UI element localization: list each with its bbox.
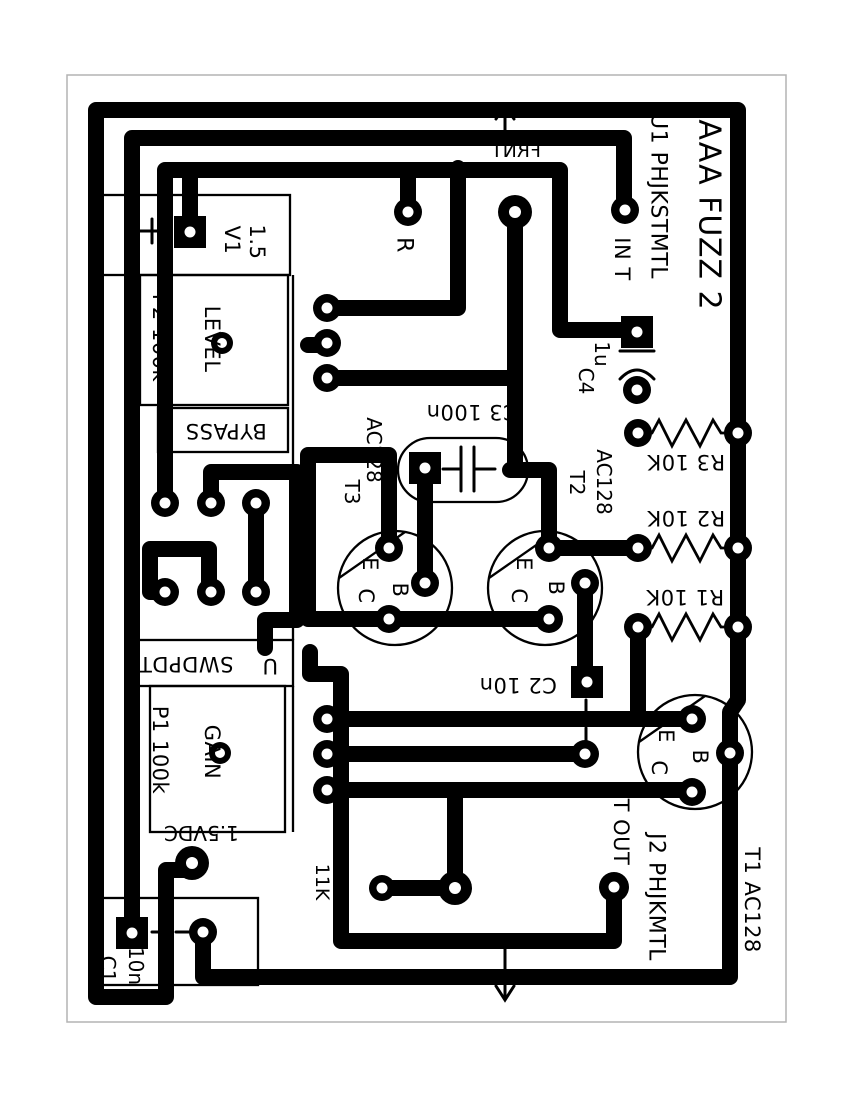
p2-label: P2 100k [148, 294, 172, 383]
j2-jack-label: J2 PHJKMTL [644, 831, 669, 961]
t3-pin-e: E [358, 557, 382, 571]
r3-label: R3 10K [646, 450, 725, 474]
r2-label: R2 10K [646, 506, 725, 530]
c1-value-label: 10n [124, 947, 148, 985]
t3-pin-c: C [354, 588, 378, 603]
pcb-canvas: 11K FRNT [0, 0, 850, 1100]
r3-symbol [640, 420, 736, 446]
battery-label: V1 [220, 226, 244, 255]
u1-jack-label: U1 PHJKSTMTL [646, 113, 671, 279]
t2-pin-c: C [507, 588, 531, 603]
level-label: LEVEL [200, 306, 224, 373]
input-label: IN T [610, 237, 634, 280]
frnt-top-label: FRNT [491, 140, 541, 162]
r1-label: R1 10K [645, 585, 724, 609]
c2-label: C2 10n [479, 673, 557, 697]
neg-supply-label: -1.5VDC [164, 821, 246, 845]
r-wire-label: R [392, 237, 417, 253]
t2-type-label: AC128 [592, 449, 616, 514]
t2-pin-e: E [512, 557, 536, 571]
t2-pin-b: B [544, 581, 568, 596]
t1-label: T1 AC128 [740, 846, 764, 953]
pcb-layout-image: 11K FRNT [0, 0, 850, 1100]
t1-pin-b: B [688, 750, 712, 765]
c4-value-label: 1u [590, 341, 614, 366]
c3-label: C3 100n [426, 400, 518, 424]
t2-label: T2 [565, 470, 589, 496]
t3-type-label: AC128 [362, 417, 386, 482]
bypass-label: BYPASS [185, 419, 266, 443]
battery-voltage-label: 1.5 [245, 225, 269, 260]
board-title: AAA FUZZ 2 [692, 119, 727, 310]
c4-label: C4 [574, 368, 598, 395]
switch-label: SWDPDT [139, 652, 234, 676]
c1-label: C1 [96, 956, 120, 983]
p1-label: P1 100k [148, 706, 172, 795]
gain-label: GAIN [200, 725, 224, 780]
t1-pin-e: E [654, 729, 678, 743]
r2-symbol [640, 535, 736, 561]
hidden-fragment-label: 11K [311, 864, 333, 901]
t1-pin-c: C [647, 760, 671, 775]
r1-symbol [640, 614, 736, 640]
out-label: T OUT [609, 798, 633, 866]
t3-pin-b: B [388, 583, 412, 598]
switch-label-fragment: U [262, 654, 278, 678]
t3-label: T3 [340, 479, 364, 505]
